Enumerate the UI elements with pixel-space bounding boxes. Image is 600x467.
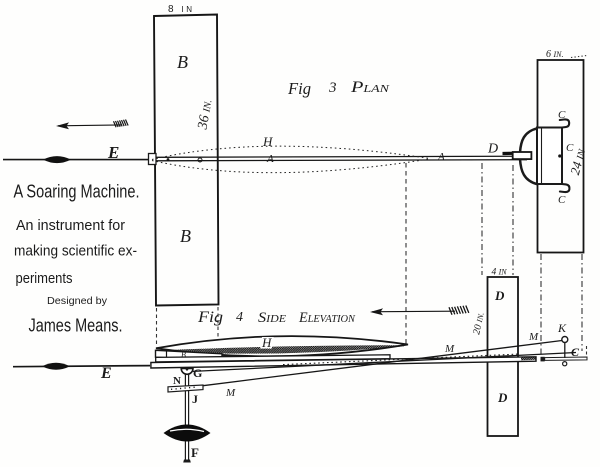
svg-text:E: E: [100, 365, 112, 382]
svg-text:Designed by: Designed by: [47, 296, 107, 307]
svg-text:SIDE: SIDE: [258, 310, 286, 326]
svg-text:ELEVATION: ELEVATION: [298, 310, 356, 326]
svg-text:A: A: [266, 153, 274, 165]
svg-text:D: D: [487, 142, 498, 157]
svg-text:C: C: [566, 142, 574, 154]
svg-text:making scientific ex-: making scientific ex-: [14, 243, 137, 260]
svg-text:A: A: [437, 151, 445, 163]
svg-text:N: N: [173, 375, 181, 387]
svg-text:J: J: [192, 392, 198, 406]
svg-text:B: B: [177, 52, 188, 72]
svg-text:Fig: Fig: [287, 79, 311, 98]
svg-text:20 IN.: 20 IN.: [471, 311, 486, 335]
svg-text:3: 3: [328, 80, 337, 96]
svg-text:A Soaring Machine.: A Soaring Machine.: [14, 182, 140, 202]
svg-text:4: 4: [236, 310, 243, 325]
svg-text:Fig: Fig: [197, 309, 223, 326]
svg-text:8 IN: 8 IN: [168, 4, 192, 15]
svg-text:M: M: [528, 331, 539, 343]
svg-text:H: H: [262, 134, 273, 149]
svg-text:H: H: [261, 335, 272, 350]
svg-text:PLAN: PLAN: [350, 79, 390, 96]
svg-text:E: E: [107, 143, 119, 162]
svg-text:6 IN.: 6 IN.: [546, 49, 564, 60]
svg-text:F: F: [191, 445, 199, 460]
svg-text:C: C: [558, 194, 566, 206]
svg-text:James Means.: James Means.: [29, 316, 123, 336]
svg-text:periments: periments: [16, 270, 73, 287]
svg-text:G: G: [193, 366, 202, 380]
svg-text:An instrument for: An instrument for: [16, 217, 125, 234]
svg-text:4 IN: 4 IN: [492, 268, 508, 278]
svg-text:36 IN.: 36 IN.: [195, 98, 215, 131]
svg-text:D: D: [497, 390, 508, 405]
svg-text:M: M: [444, 343, 455, 355]
svg-text:M: M: [225, 387, 236, 399]
svg-text:K: K: [557, 321, 567, 335]
svg-text:B: B: [180, 226, 191, 246]
svg-text:C: C: [558, 109, 566, 121]
svg-text:D: D: [494, 288, 505, 303]
